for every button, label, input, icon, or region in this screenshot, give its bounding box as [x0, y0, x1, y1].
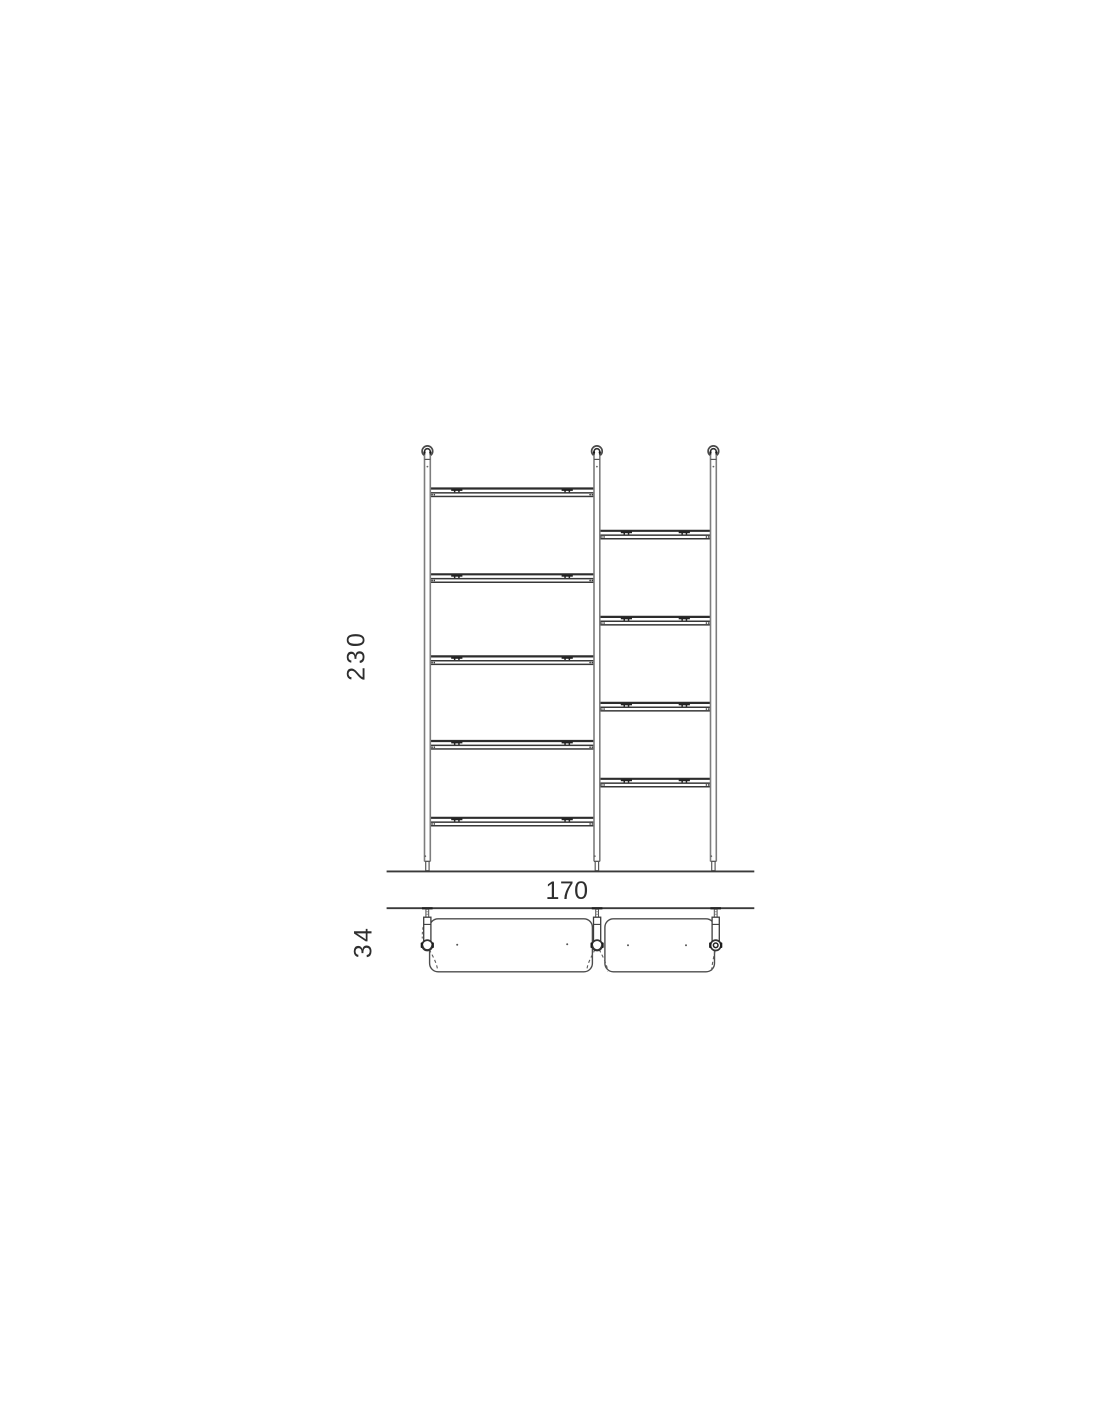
- svg-text:34: 34: [349, 926, 377, 959]
- svg-text:230: 230: [342, 630, 370, 681]
- svg-text:170: 170: [546, 877, 589, 905]
